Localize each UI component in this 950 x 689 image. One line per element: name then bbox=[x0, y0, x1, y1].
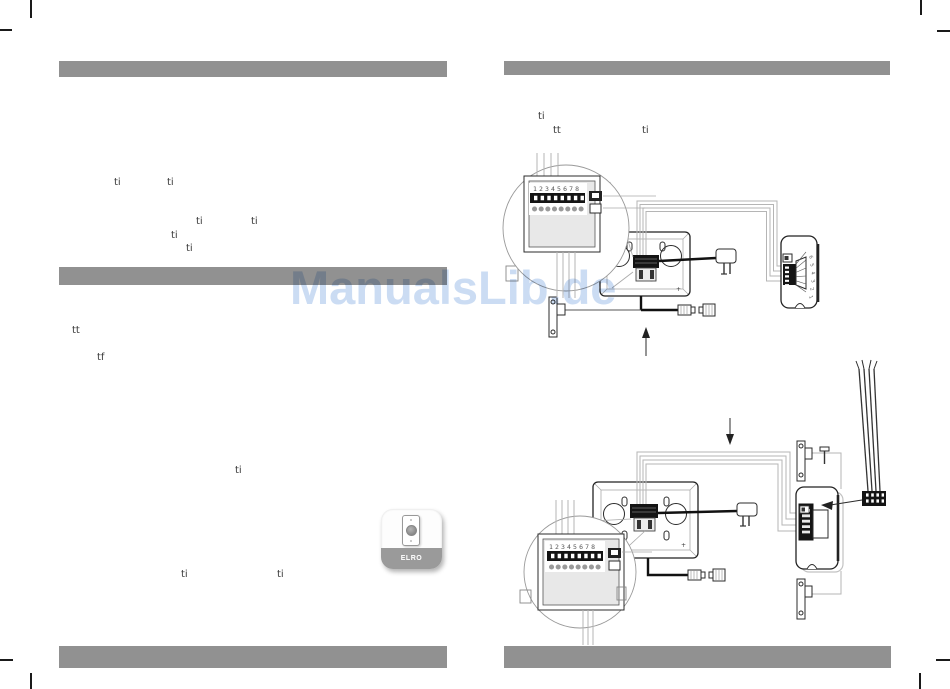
monitor-terminal-block bbox=[630, 504, 658, 531]
screw-bolt bbox=[820, 447, 829, 464]
down-arrow bbox=[726, 418, 734, 445]
door-station bbox=[796, 487, 838, 569]
harness-connector bbox=[862, 491, 886, 506]
plus-mark: + bbox=[676, 286, 681, 293]
door-lock-wiring bbox=[648, 558, 725, 581]
wall-bracket-corner bbox=[506, 266, 518, 281]
up-arrow bbox=[642, 327, 650, 356]
cable-connector bbox=[678, 304, 715, 316]
scanned-manual-page: ti ti ti ti ti ti tt tf ti ti ti ti tt t… bbox=[0, 0, 950, 689]
monitor-terminal-block bbox=[633, 255, 659, 281]
lock-strike-plate bbox=[797, 441, 812, 481]
lock-strike-plate bbox=[549, 297, 565, 337]
cable-connector bbox=[688, 569, 725, 581]
door-station-assembly bbox=[796, 360, 886, 619]
terminal-numbers: 12345678 bbox=[549, 543, 597, 551]
door-lock-wiring bbox=[549, 296, 715, 356]
lock-strike-plate bbox=[797, 579, 812, 619]
wiring-diagrams: + bbox=[0, 0, 950, 689]
door-station: 6 5 4 3 2 1 bbox=[781, 236, 818, 308]
diagram-bottom: + bbox=[520, 360, 886, 645]
diagram-top: + bbox=[503, 153, 818, 356]
terminal-numbers: 12345678 bbox=[533, 185, 581, 193]
plus-mark: + bbox=[681, 542, 686, 549]
